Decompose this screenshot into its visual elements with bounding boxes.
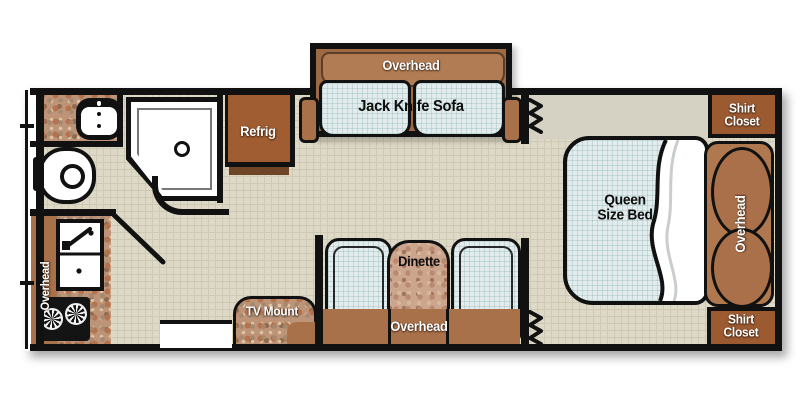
shirt-closet-bottom-label: Shirt Closet — [715, 313, 767, 340]
bottom-wall — [30, 344, 782, 351]
shirt-closet-top-label: Shirt Closet — [716, 102, 768, 129]
floorplan: Overhead Refrig Overhead Jack Knife Sofa… — [0, 0, 800, 400]
bath-right-wall — [217, 95, 223, 203]
top-wall-right — [506, 88, 782, 95]
bed-blanket-fold — [644, 140, 706, 301]
queen-bed-label-line1: Queen — [604, 192, 646, 209]
left-wall — [36, 88, 44, 351]
refrigerator-base-shadow — [229, 167, 289, 175]
tv-cabinet-shelf — [287, 322, 315, 344]
dinette-left-wall — [315, 235, 323, 348]
break-symbol-top-icon — [527, 98, 545, 134]
entry-door — [160, 320, 232, 348]
bath-divider-wall — [117, 95, 123, 147]
door-swing-icon — [106, 208, 170, 268]
front-cap-tick-top — [20, 124, 34, 128]
kitchen-overhead-label: Overhead — [39, 262, 51, 311]
sofa-overhead-label: Overhead — [382, 58, 439, 72]
bath-bottom-wall — [30, 209, 116, 216]
break-symbol-bottom-icon — [527, 310, 545, 346]
top-wall-left — [30, 88, 316, 95]
bedroom-overhead-label: Overhead — [733, 195, 747, 252]
bedroom-floor-strip — [529, 95, 709, 139]
bathroom-sink-icon — [76, 98, 122, 140]
toilet-bowl-icon — [38, 147, 96, 204]
right-wall — [775, 88, 782, 351]
bath-counter-wall — [30, 141, 123, 147]
queen-bed-label: Queen Size Bed — [597, 193, 652, 224]
dinette-overhead-label: Overhead — [390, 319, 447, 333]
kitchen-sink-icon — [56, 219, 104, 291]
refrigerator-label: Refrig — [240, 124, 276, 138]
queen-bed-label-line2: Size Bed — [597, 207, 652, 224]
front-cap-line — [25, 90, 28, 349]
dinette-label: Dinette — [398, 254, 440, 268]
sofa-label: Jack Knife Sofa — [358, 99, 463, 115]
tv-mount-label: TV Mount — [246, 304, 298, 317]
front-cap-tick-bottom — [20, 281, 34, 285]
sofa-armrest-right — [502, 97, 522, 143]
sofa-armrest-left — [299, 97, 319, 143]
